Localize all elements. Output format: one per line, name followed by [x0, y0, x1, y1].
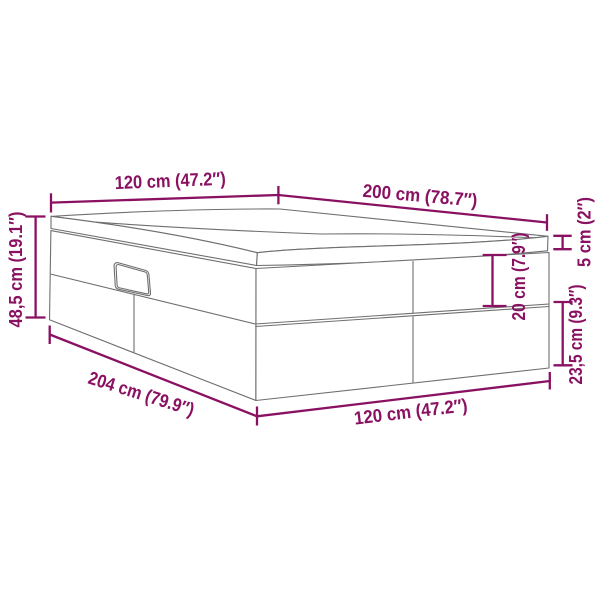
svg-text:5 cm (2″): 5 cm (2″): [573, 197, 594, 267]
svg-text:48,5 cm (19.1″): 48,5 cm (19.1″): [5, 212, 26, 328]
svg-text:120 cm (47.2″): 120 cm (47.2″): [114, 168, 226, 193]
svg-text:23,5 cm (9.3″): 23,5 cm (9.3″): [565, 285, 586, 385]
svg-text:20 cm (7.9″): 20 cm (7.9″): [508, 233, 529, 321]
